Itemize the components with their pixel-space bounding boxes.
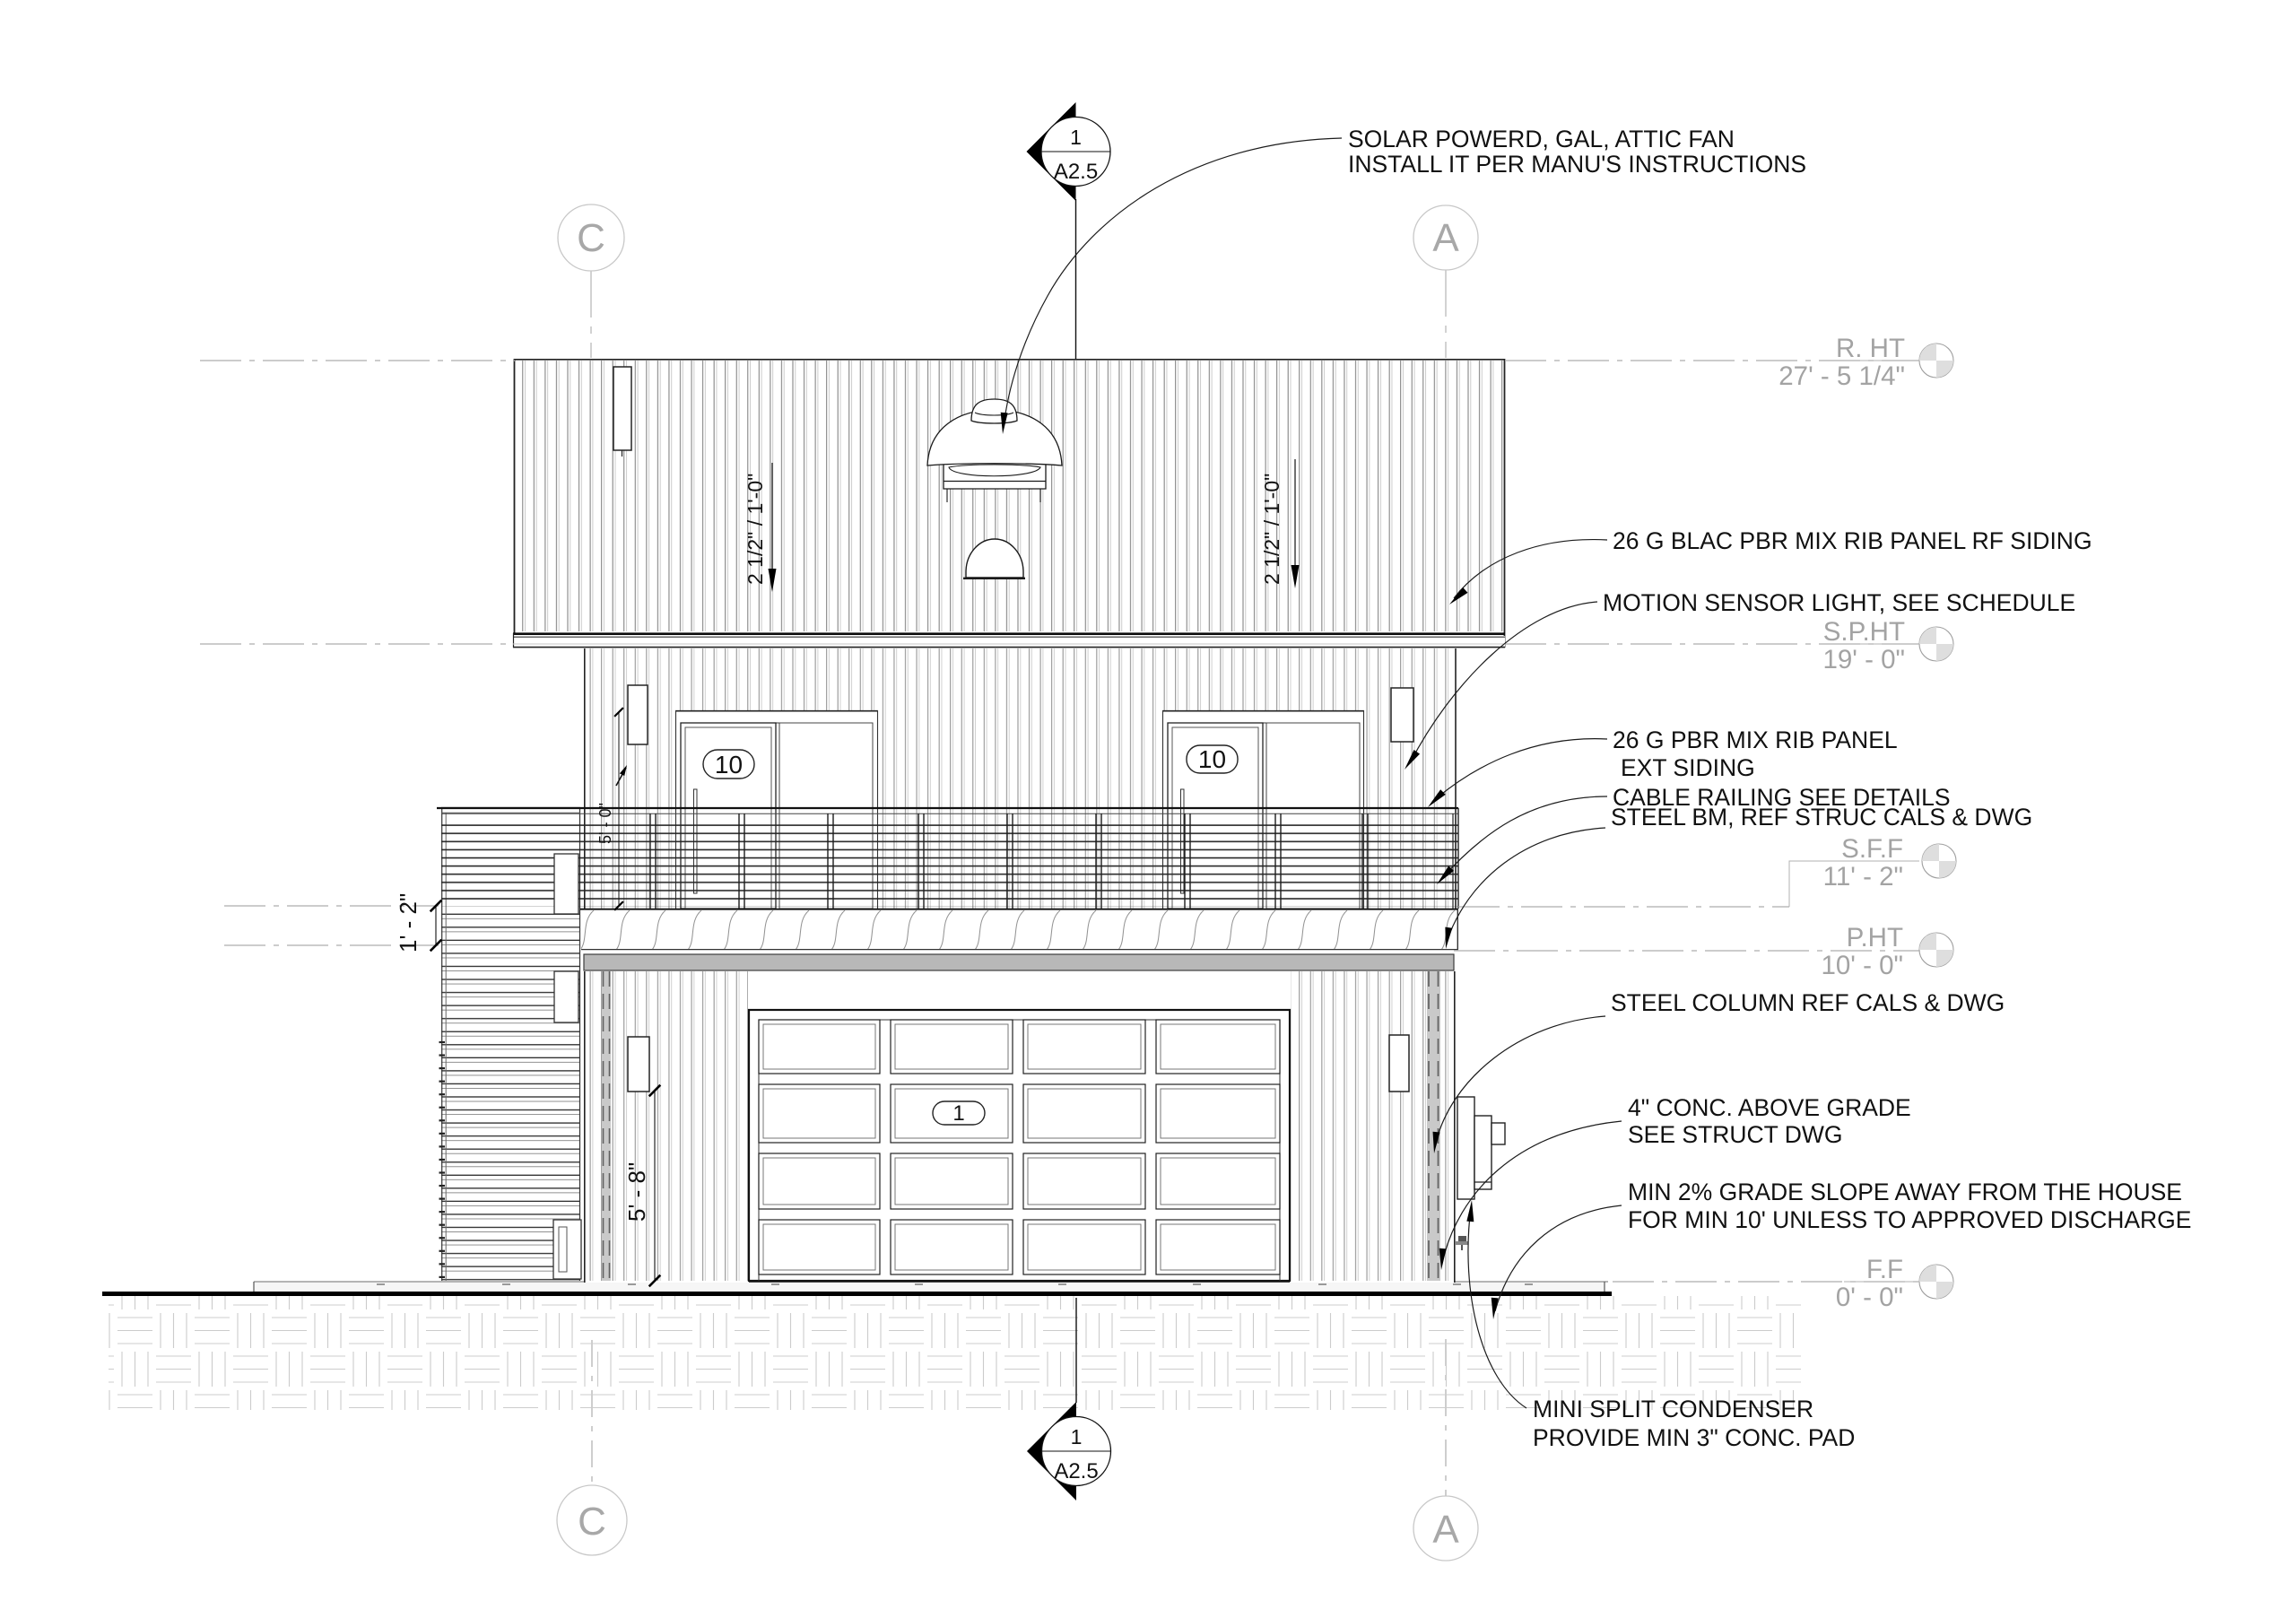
svg-text:A: A [1432,216,1459,260]
svg-text:SOLAR POWERD, GAL, ATTIC FAN: SOLAR POWERD, GAL, ATTIC FAN [1348,126,1735,152]
svg-text:5' - 8": 5' - 8" [623,1162,650,1222]
svg-text:A2.5: A2.5 [1054,1459,1098,1483]
svg-text:26 G PBR MIX RIB PANEL: 26 G PBR MIX RIB PANEL [1613,726,1898,753]
svg-text:0' - 0": 0' - 0" [1836,1283,1903,1312]
svg-text:10' - 0": 10' - 0" [1821,951,1903,980]
svg-text:MIN 2% GRADE SLOPE AWAY FROM T: MIN 2% GRADE SLOPE AWAY FROM THE HOUSE [1628,1179,2182,1205]
svg-text:2 1/2" / 1'-0": 2 1/2" / 1'-0" [1260,474,1283,585]
svg-text:1: 1 [1071,1425,1083,1448]
svg-text:SEE STRUCT DWG: SEE STRUCT DWG [1628,1121,1843,1148]
svg-text:FOR MIN 10' UNLESS TO APPROVED: FOR MIN 10' UNLESS TO APPROVED DISCHARGE [1628,1206,2191,1233]
svg-text:MINI SPLIT CONDENSER: MINI SPLIT CONDENSER [1533,1396,1813,1422]
svg-text:11' - 2": 11' - 2" [1823,862,1903,892]
svg-text:C: C [578,1500,606,1544]
svg-text:S.F.F: S.F.F [1841,834,1903,864]
svg-text:INSTALL IT PER MANU'S INSTRUCT: INSTALL IT PER MANU'S INSTRUCTIONS [1348,151,1806,178]
svg-text:P.HT: P.HT [1847,923,1903,953]
svg-text:A2.5: A2.5 [1054,160,1098,184]
svg-text:R. HT: R. HT [1836,334,1905,363]
svg-text:STEEL BM, REF STRUC CALS & DWG: STEEL BM, REF STRUC CALS & DWG [1611,804,2032,831]
svg-text:C: C [577,216,605,260]
svg-text:26 G BLAC PBR MIX RIB PANEL RF: 26 G BLAC PBR MIX RIB PANEL RF SIDING [1613,527,2092,554]
svg-text:1' - 2": 1' - 2" [395,893,422,953]
svg-text:27' - 5 1/4": 27' - 5 1/4" [1779,361,1905,391]
svg-text:EXT SIDING: EXT SIDING [1621,754,1755,781]
svg-text:4" CONC. ABOVE GRADE: 4" CONC. ABOVE GRADE [1628,1094,1911,1121]
svg-text:5' - 0": 5' - 0" [596,803,614,844]
svg-text:1: 1 [1070,126,1082,149]
svg-text:19' - 0": 19' - 0" [1822,645,1905,674]
svg-text:STEEL COLUMN REF CALS & DWG: STEEL COLUMN REF CALS & DWG [1611,989,2005,1016]
svg-text:10: 10 [715,751,743,779]
svg-text:MOTION SENSOR LIGHT, SEE SCHED: MOTION SENSOR LIGHT, SEE SCHEDULE [1603,589,2075,616]
svg-text:2 1/2" / 1'-0": 2 1/2" / 1'-0" [744,474,767,585]
svg-text:A: A [1432,1508,1459,1552]
svg-text:S.P.HT: S.P.HT [1823,617,1905,647]
svg-text:F.F: F.F [1866,1255,1903,1284]
svg-text:PROVIDE MIN 3" CONC. PAD: PROVIDE MIN 3" CONC. PAD [1533,1424,1855,1451]
svg-text:10: 10 [1198,745,1226,773]
svg-text:1: 1 [952,1101,964,1126]
